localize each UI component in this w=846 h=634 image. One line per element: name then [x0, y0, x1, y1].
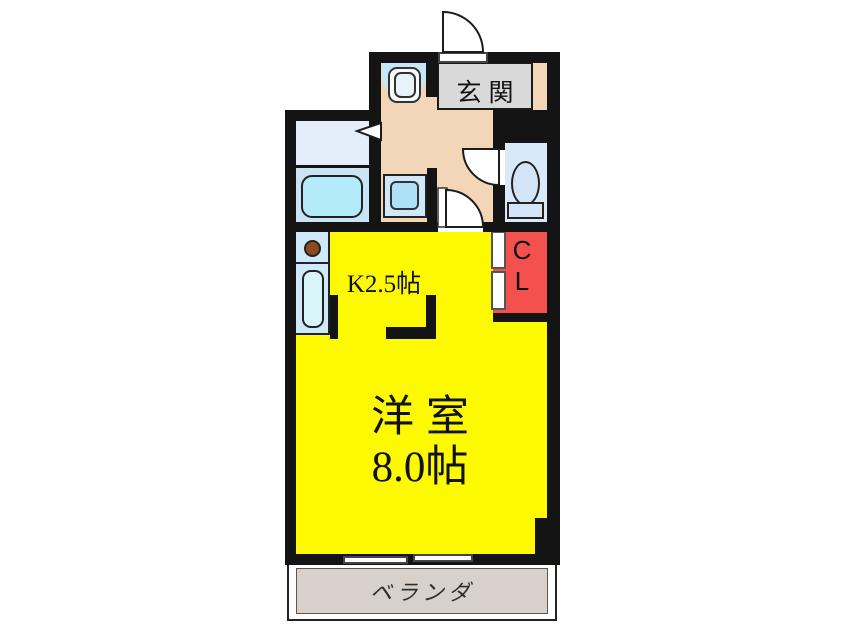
kitchen-door-arc	[446, 190, 483, 227]
washroom-door-arrow-icon	[357, 123, 381, 140]
kitchen-label: K2.5帖	[334, 264, 434, 300]
floor-plan: 玄関 K2.5帖 洋室 8.0帖 C L ベランダ	[0, 0, 846, 634]
main-room-label-line2: 8.0帖	[320, 432, 520, 494]
closet-label-c: C	[498, 235, 546, 266]
entrance-door-arc	[443, 12, 483, 52]
toilet-door-arc	[463, 149, 499, 185]
door-arcs-overlay	[0, 0, 846, 634]
veranda-label: ベランダ	[296, 575, 548, 607]
closet-label-l: L	[498, 266, 546, 297]
entrance-label: 玄関	[437, 73, 533, 109]
